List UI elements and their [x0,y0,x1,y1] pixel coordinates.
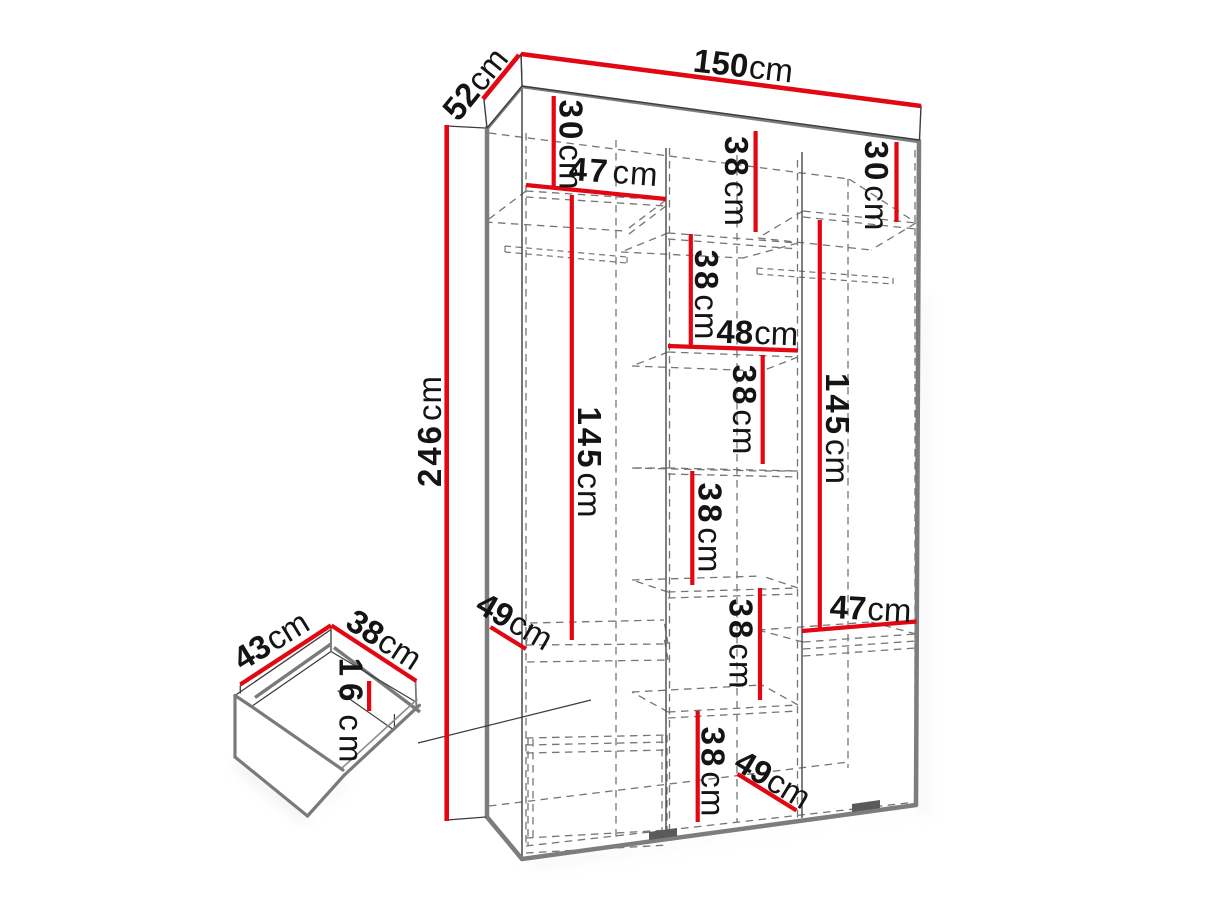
svg-text:38cm: 38cm [718,136,755,227]
svg-text:38cm: 38cm [694,727,731,818]
svg-text:145cm: 145cm [819,373,856,485]
svg-text:145cm: 145cm [571,406,608,518]
svg-text:48cm: 48cm [716,313,799,353]
svg-text:246cm: 246cm [411,375,448,487]
svg-text:38cm: 38cm [723,599,760,690]
svg-text:47cm: 47cm [568,150,660,193]
svg-text:38cm: 38cm [726,365,763,456]
svg-text:38cm: 38cm [691,483,728,574]
svg-text:30cm: 30cm [858,141,895,232]
svg-text:47cm: 47cm [829,588,913,629]
